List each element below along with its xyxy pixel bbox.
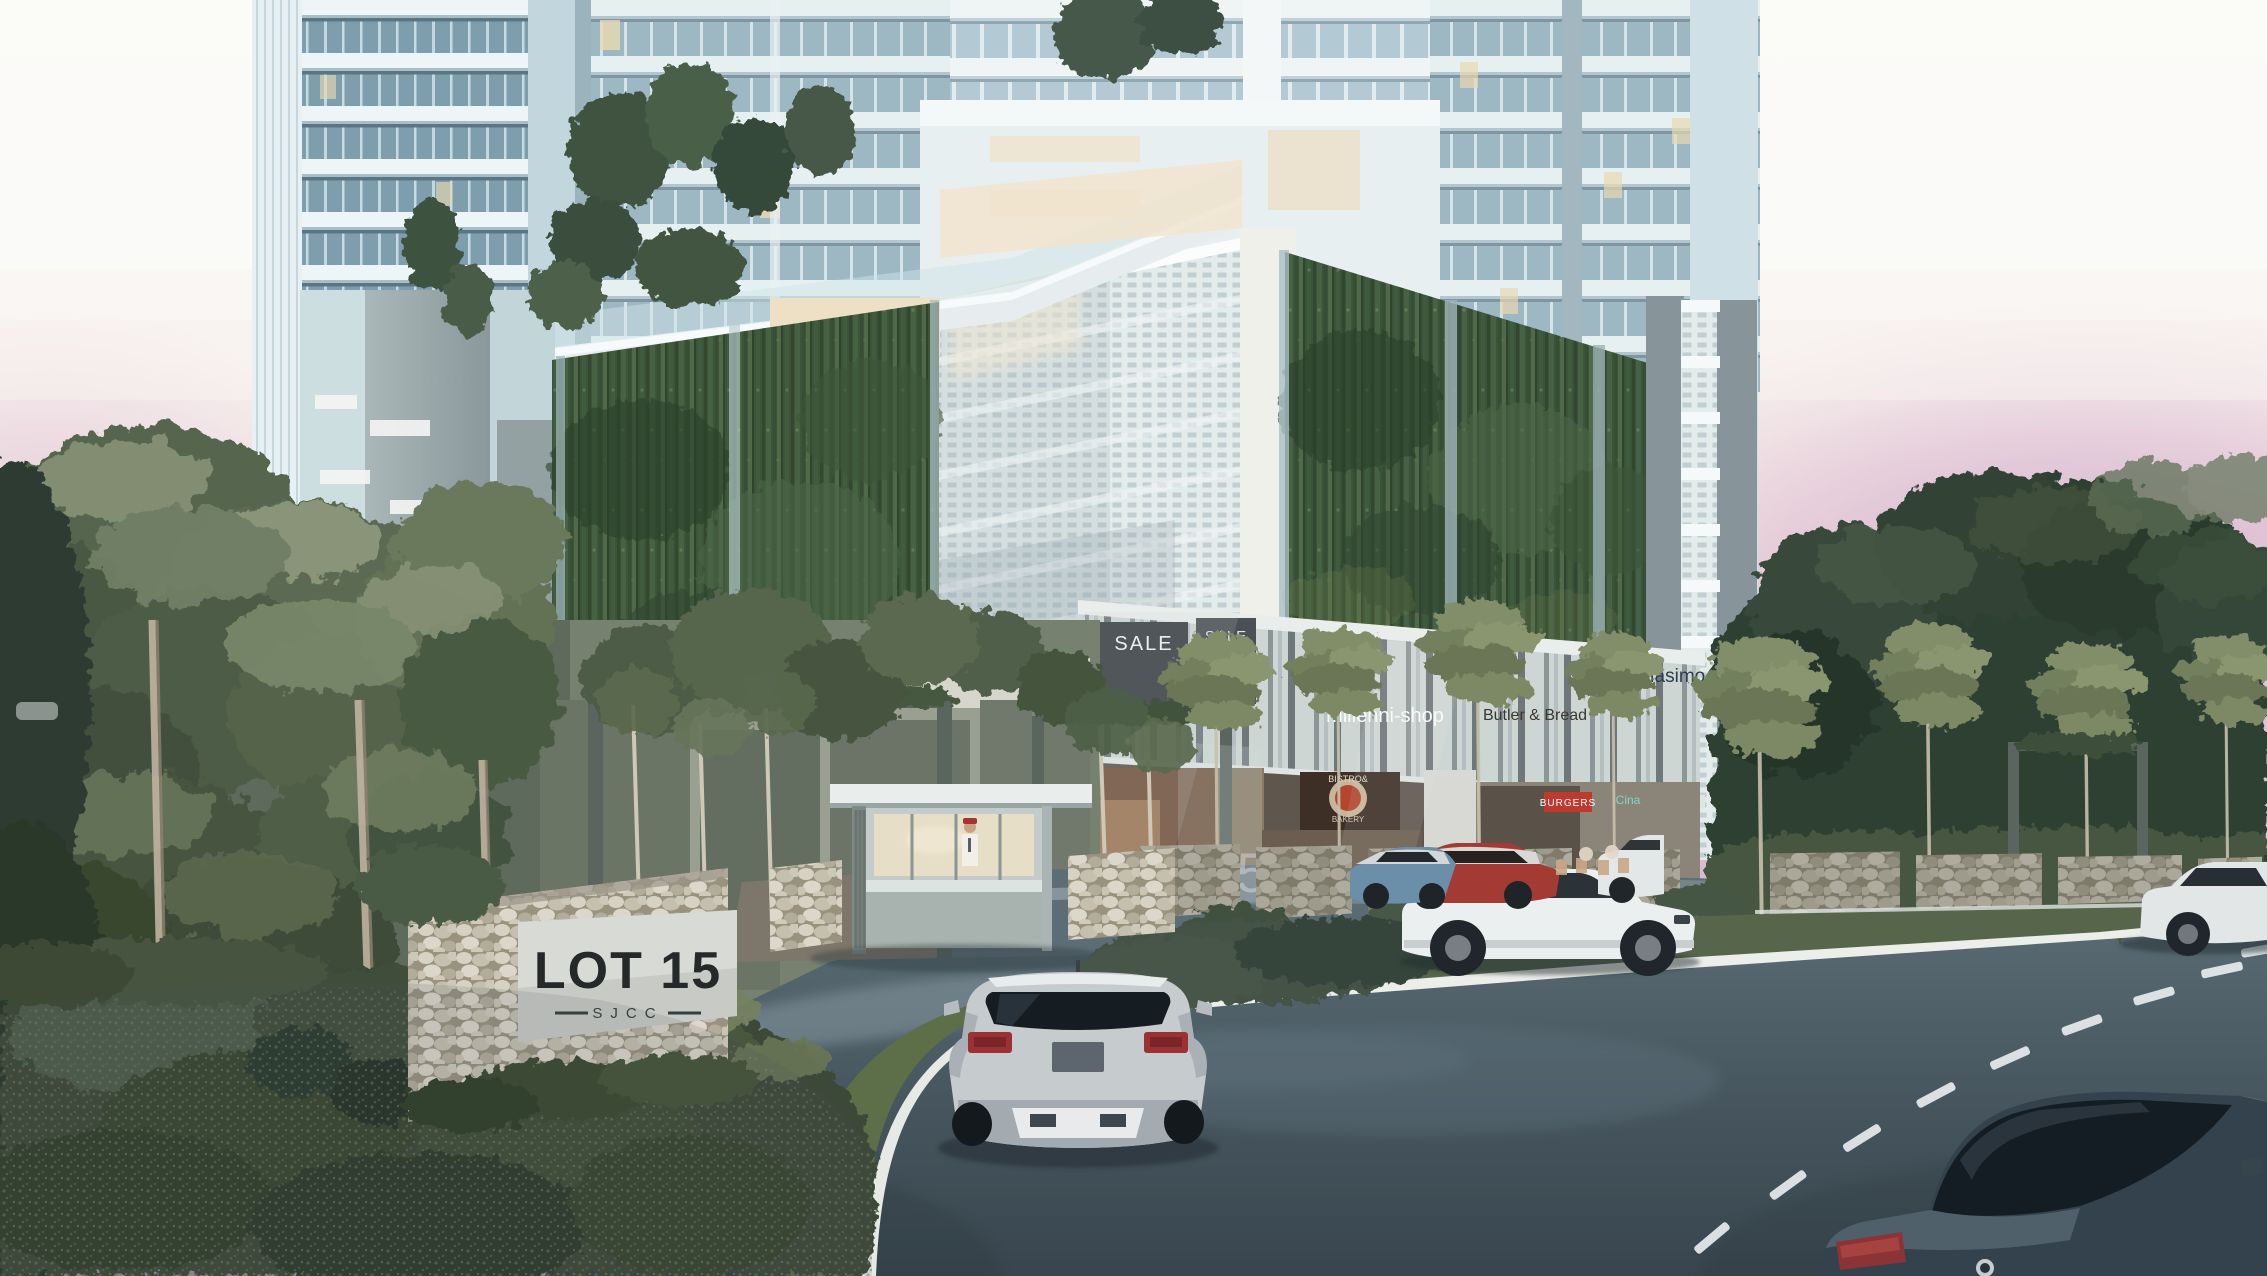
svg-text:LOT 15: LOT 15 — [534, 942, 722, 1000]
svg-text:Butler & Bread: Butler & Bread — [1483, 707, 1587, 724]
svg-text:Cina: Cina — [1616, 793, 1641, 807]
svg-text:BURGERS: BURGERS — [1540, 798, 1596, 809]
